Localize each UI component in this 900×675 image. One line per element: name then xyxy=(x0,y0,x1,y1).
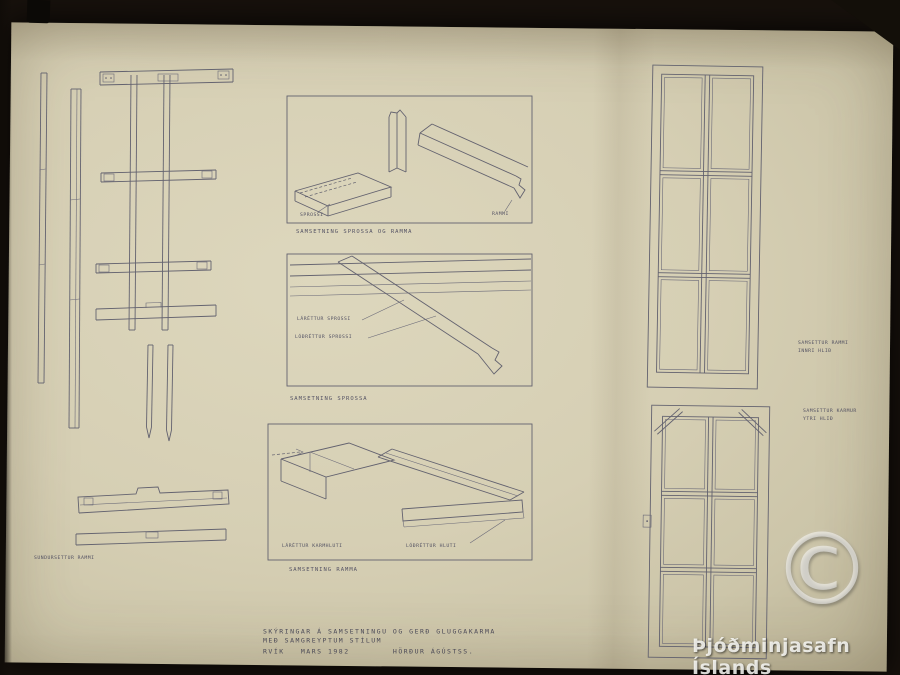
background-edge xyxy=(0,0,12,675)
title-line-1: SKÝRINGAR Á SAMSETNINGU OG GERÐ GLUGGAKA… xyxy=(263,628,496,636)
window-elevation-outer xyxy=(641,405,770,659)
label-vertical-sprossi: LÓÐRÉTTUR SPROSSI xyxy=(295,334,352,340)
joint-detail-frame-corner xyxy=(268,424,532,560)
watermark-museum-name: Þjóðminjasafn Íslands xyxy=(692,635,900,675)
title-line-2: MEÐ SAMGREYPTUM STÍLUM xyxy=(263,637,382,645)
binder-clip xyxy=(27,0,51,23)
caption-window-outer-1: SAMSETTUR KARMUR xyxy=(803,408,857,414)
caption-detail-1: SAMSETNING SPROSSA OG RAMMA xyxy=(296,228,412,235)
technical-line-art xyxy=(0,0,900,675)
window-elevation-inner xyxy=(647,65,763,389)
label-horizontal-sprossi: LÁRÉTTUR SPROSSI xyxy=(297,316,351,322)
caption-exploded-frame: SUNDURSETTUR RAMMI xyxy=(34,555,94,561)
joint-detail-sprossa-ramma xyxy=(287,96,532,223)
title-line-3: RVÍK MARS 1982 HÖRÐUR ÁGÚSTSS. xyxy=(263,648,474,656)
caption-window-outer-2: YTRI HLIÐ xyxy=(803,416,833,422)
label-rammi: RAMMI xyxy=(492,211,509,217)
caption-detail-3: SAMSETNING RAMMA xyxy=(289,566,358,573)
label-horizontal-karm: LÁRÉTTUR KARMHLUTI xyxy=(282,543,342,549)
photo-of-architectural-drawing: SUNDURSETTUR RAMMI SPROSSI RAMMI SAMSETN… xyxy=(0,0,900,675)
caption-detail-2: SAMSETNING SPROSSA xyxy=(290,395,368,402)
label-vertical-part: LÓÐRÉTTUR HLUTI xyxy=(406,543,456,549)
caption-window-inner-1: SAMSETTUR RAMMI xyxy=(798,340,848,346)
caption-window-inner-2: INNRI HLIÐ xyxy=(798,348,832,354)
label-sprossi: SPROSSI xyxy=(300,212,324,218)
exploded-frame-parts xyxy=(38,69,233,545)
copyright-icon: © xyxy=(772,520,872,620)
